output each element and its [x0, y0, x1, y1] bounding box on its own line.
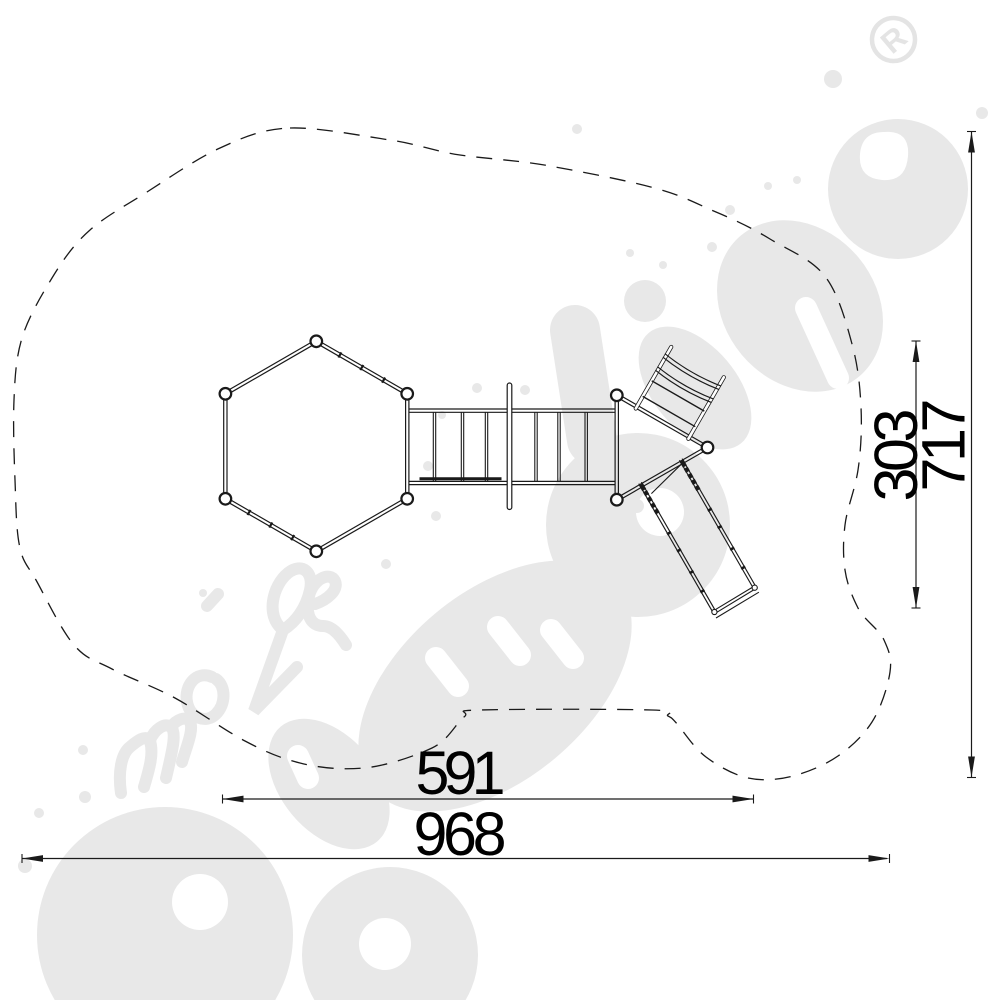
svg-text:591: 591: [416, 739, 506, 807]
svg-text:717: 717: [910, 399, 978, 492]
svg-text:968: 968: [414, 800, 507, 868]
